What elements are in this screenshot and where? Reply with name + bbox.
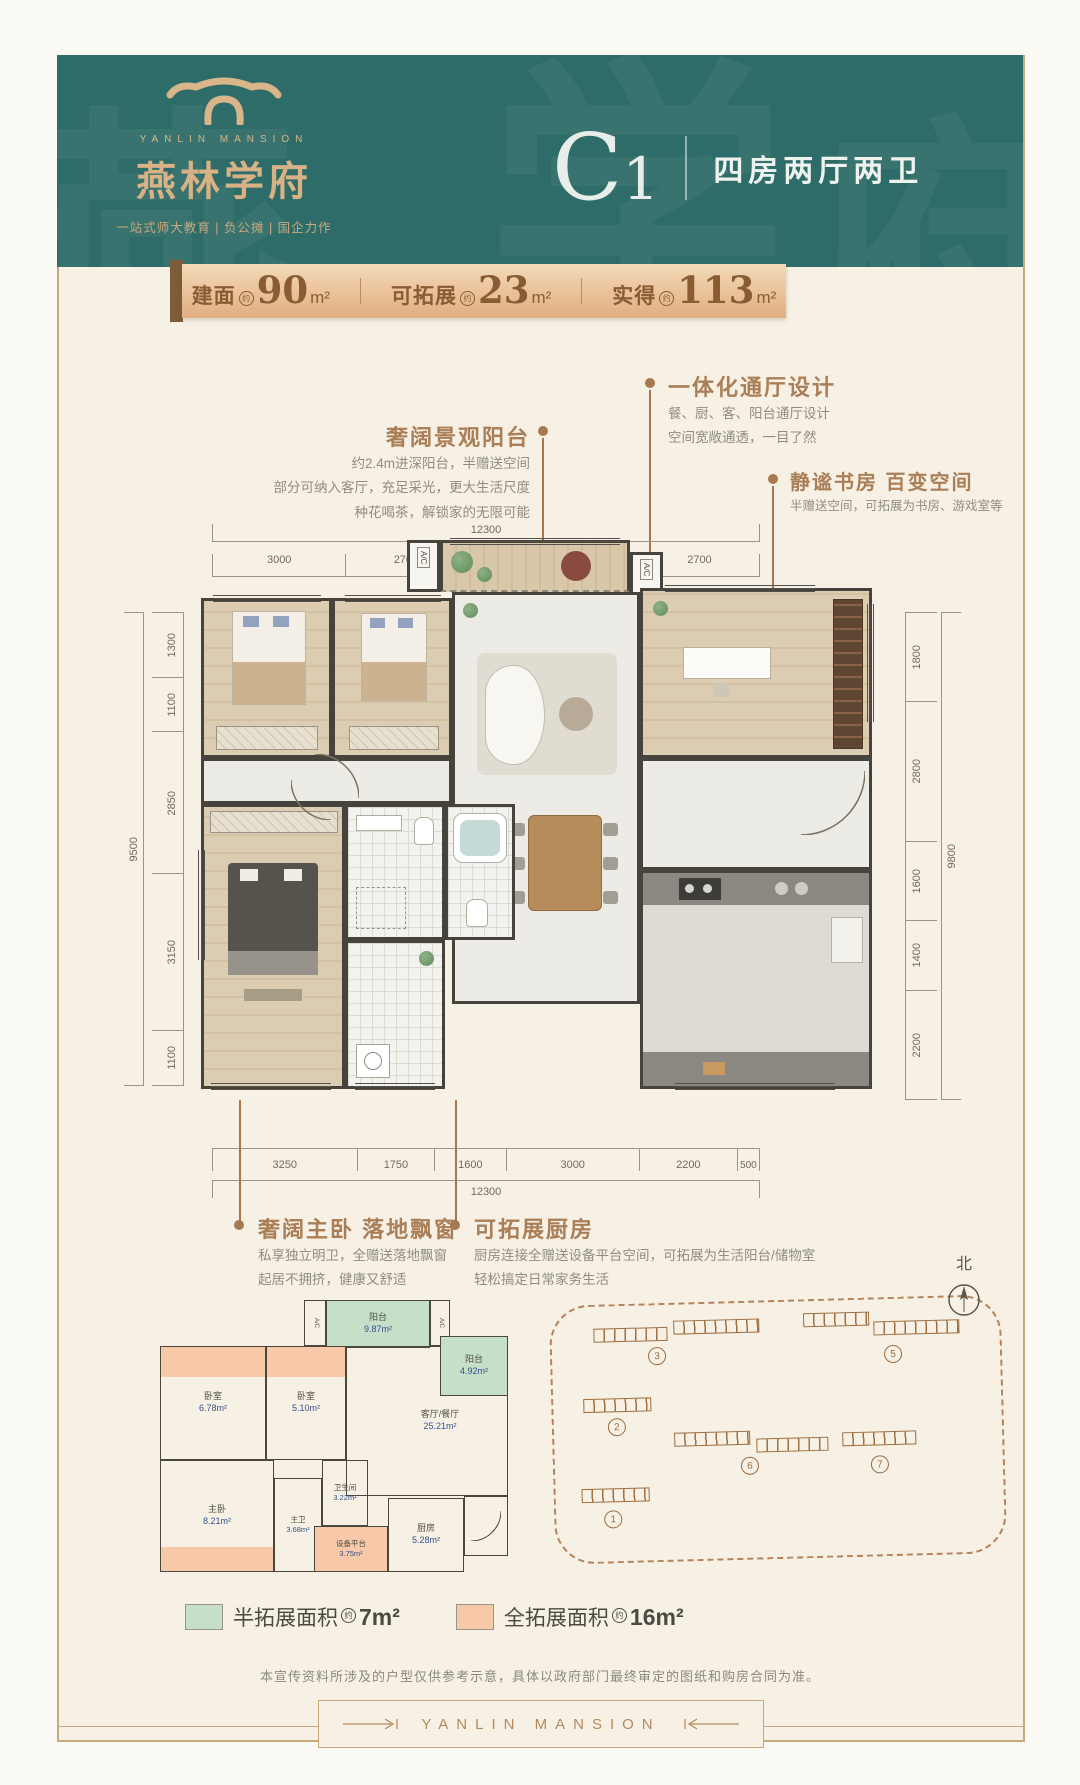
callout-balcony: 奢阔景观阳台 约2.4m进深阳台，半赠送空间 部分可纳入客厅，充足采光，更大生活… <box>180 420 530 525</box>
callout-leader-line <box>239 1100 241 1222</box>
dim-right-total: 9800 <box>941 612 961 1100</box>
callout-dot <box>538 426 548 436</box>
sofa <box>485 665 545 765</box>
room-area: 9.87m² <box>364 1324 392 1336</box>
bench <box>244 989 302 1001</box>
room-name: 主卫 <box>291 1515 306 1525</box>
dim-value: 1600 <box>911 869 923 893</box>
dim-bottom-segments: 3250 1750 1600 3000 2200 500 <box>212 1148 760 1171</box>
pillow <box>240 869 258 881</box>
plan-equipment-platform <box>345 940 445 1089</box>
toilet <box>414 817 434 845</box>
bar-divider <box>581 278 582 304</box>
building-block <box>581 1487 649 1503</box>
callout-title: 静谧书房 百变空间 <box>790 466 1050 495</box>
footer-ornament-right <box>679 1718 739 1730</box>
window <box>213 595 321 602</box>
mini-master-bedroom: 主卧 8.21m² <box>160 1460 274 1572</box>
dining-table <box>528 815 602 911</box>
legend-half-expand: 半拓展面积 约 7m² <box>185 1602 400 1632</box>
coffee-table <box>559 697 593 731</box>
bed <box>232 611 306 705</box>
room-name: 卧室 <box>204 1391 222 1403</box>
area-unit: m² <box>531 288 551 308</box>
plant <box>419 951 434 966</box>
pillow <box>284 869 302 881</box>
room-name: 阳台 <box>369 1312 387 1324</box>
roof-logo-icon <box>164 73 284 125</box>
desk <box>683 647 771 679</box>
area-value: 113 <box>677 272 754 309</box>
wardrobe <box>216 726 318 750</box>
building-block <box>674 1431 750 1447</box>
callout-line: 轻松搞定日常家务生活 <box>474 1268 894 1292</box>
ac-label: A/C <box>311 1318 319 1328</box>
brand-name-cn: 燕林学府 <box>109 149 339 207</box>
plan-balcony <box>440 540 630 592</box>
room-name: 设备平台 <box>336 1539 366 1549</box>
mini-equipment-platform: 设备平台 3.75m² <box>314 1526 388 1572</box>
dim-value: 2850 <box>166 791 178 815</box>
area-label: 实得 <box>612 280 656 310</box>
balcony-table <box>561 551 591 581</box>
fridge <box>831 917 863 963</box>
callout-study: 静谧书房 百变空间 半赠送空间，可拓展为书房、游戏室等 <box>790 466 1050 518</box>
area-item-expandable: 可拓展 约 23 m² <box>391 272 551 310</box>
plan-bedroom-2 <box>332 598 452 758</box>
callout-line: 部分可纳入客厅，充足采光，更大生活尺度 <box>180 476 530 500</box>
approx-mark: 约 <box>612 1608 627 1623</box>
washer-door <box>364 1052 382 1070</box>
window <box>450 538 620 545</box>
room-area: 3.22m² <box>333 1493 356 1503</box>
plan-master-bedroom <box>201 804 345 1089</box>
blanket <box>362 662 426 700</box>
plant <box>653 601 668 616</box>
sink <box>795 882 808 895</box>
full-expand-zone <box>267 1347 345 1377</box>
room-name: 厨房 <box>417 1523 435 1535</box>
window <box>355 1083 435 1090</box>
plan-ac-left: A/C <box>407 540 440 592</box>
room-name: 卫生间 <box>334 1483 357 1493</box>
legend-label: 全拓展面积 <box>504 1602 609 1632</box>
approx-mark: 约 <box>341 1608 356 1623</box>
window <box>665 585 815 592</box>
approx-mark: 约 <box>659 291 674 306</box>
callout-line: 厨房连接全赠送设备平台空间，可拓展为生活阳台/储物室 <box>474 1244 894 1268</box>
pillow <box>273 616 289 627</box>
cutting-board <box>703 1062 725 1075</box>
mini-balcony-small: 阳台 4.92m² <box>440 1336 508 1396</box>
room-area: 6.78m² <box>199 1403 227 1415</box>
dim-value: 1100 <box>166 693 178 717</box>
room-name: 卧室 <box>297 1391 315 1403</box>
callout-line: 约2.4m进深阳台，半赠送空间 <box>180 452 530 476</box>
pillow <box>370 618 385 628</box>
door-arc <box>471 1511 501 1541</box>
building-block <box>803 1312 869 1328</box>
bookshelf <box>833 599 863 749</box>
dim-value: 9800 <box>946 844 958 868</box>
brand-logo: YANLIN MANSION 燕林学府 一站式师大教育 | 负公摊 | 国企力作 <box>109 73 339 236</box>
approx-mark: 约 <box>239 291 254 306</box>
brand-name-en: YANLIN MANSION <box>109 134 339 145</box>
compass-icon <box>944 1274 984 1318</box>
area-summary-bar: 建面 约 90 m² 可拓展 约 23 m² 实得 约 113 m² <box>182 264 786 318</box>
room-area: 5.28m² <box>412 1535 440 1547</box>
room-area: 3.68m² <box>286 1525 309 1535</box>
building-block <box>583 1397 651 1413</box>
dim-left-segments: 1300 1100 2850 3150 1100 <box>152 612 184 1086</box>
callout-line: 空间宽敞通透，一目了然 <box>668 426 978 450</box>
callout-line: 半赠送空间，可拓展为书房、游戏室等 <box>790 495 1050 518</box>
footer-ornament-left <box>343 1718 403 1730</box>
ac-label: A/C <box>436 1318 444 1328</box>
dim-bottom-total: 12300 <box>212 1180 760 1198</box>
unit-letter: C <box>552 114 622 221</box>
burner <box>685 884 694 893</box>
entry-door-arc <box>801 771 865 835</box>
callout-dot <box>234 1220 244 1230</box>
window <box>345 595 441 602</box>
dim-value: 12300 <box>471 1186 502 1198</box>
kitchen-counter <box>643 1052 869 1086</box>
callout-dot <box>450 1220 460 1230</box>
vanity <box>356 815 402 831</box>
dim-value: 1400 <box>911 943 923 967</box>
callout-dot <box>645 378 655 388</box>
north-compass: 北 <box>942 1250 986 1323</box>
plant <box>451 551 473 573</box>
chair <box>603 891 618 904</box>
mini-entry <box>464 1496 508 1556</box>
dim-value: 12300 <box>471 524 502 536</box>
dim-value: 3250 <box>273 1159 297 1171</box>
area-item-gross: 建面 约 90 m² <box>192 272 330 310</box>
building-number: 5 <box>884 1345 902 1363</box>
building-number: 7 <box>871 1455 889 1473</box>
callout-title: 可拓展厨房 <box>474 1212 894 1244</box>
unit-code: C1 <box>552 122 659 214</box>
unit-divider <box>685 136 687 200</box>
unit-number: 1 <box>622 145 659 213</box>
brand-tagline: 一站式师大教育 | 负公摊 | 国企力作 <box>109 217 339 236</box>
chair <box>713 683 729 697</box>
legend-swatch-green <box>185 1604 223 1630</box>
bed <box>361 613 427 701</box>
callout-title: 奢阔景观阳台 <box>180 420 530 452</box>
dim-value: 9500 <box>128 837 140 861</box>
callout-line: 种花喝茶，解锁家的无限可能 <box>180 501 530 525</box>
dim-value: 1750 <box>384 1159 408 1171</box>
legend-label: 半拓展面积 <box>233 1602 338 1632</box>
site-plan: 3 5 2 6 7 1 <box>549 1294 1008 1565</box>
area-value: 23 <box>478 272 530 309</box>
area-unit: m² <box>757 288 777 308</box>
blanket <box>228 951 318 975</box>
full-expand-zone <box>161 1547 273 1571</box>
legend-full-expand: 全拓展面积 约 16m² <box>456 1602 684 1632</box>
legend-value: 16m² <box>630 1604 684 1631</box>
window <box>867 604 874 722</box>
plan-entry-hall <box>640 758 872 870</box>
header-banner: 燕 学 府 YANLIN MANSION 燕林学府 一站式师大教育 | 负公摊 … <box>57 55 1023 267</box>
plant <box>463 603 478 618</box>
dim-value: 500 <box>740 1160 757 1171</box>
plan-master-bath <box>345 804 445 940</box>
callout-hall: 一体化通厅设计 餐、厨、客、阳台通厅设计 空间宽敞通透，一目了然 <box>668 370 978 451</box>
dim-value: 2200 <box>676 1159 700 1171</box>
plan-bathroom <box>445 804 515 940</box>
bathtub <box>453 813 507 863</box>
room-area: 8.21m² <box>203 1516 231 1528</box>
plan-living-dining <box>452 592 640 1004</box>
dim-value: 1800 <box>911 645 923 669</box>
room-name: 主卧 <box>208 1504 226 1516</box>
full-expand-zone <box>161 1347 265 1377</box>
mini-ac: A/C <box>304 1300 326 1346</box>
unit-title: C1 四房两厅两卫 <box>552 103 923 233</box>
dim-value: 3000 <box>560 1159 584 1171</box>
wardrobe <box>349 726 439 750</box>
building-number: 6 <box>741 1457 759 1475</box>
kitchen-counter <box>643 873 869 905</box>
bay-window <box>211 1083 331 1090</box>
room-area: 3.75m² <box>339 1549 362 1559</box>
area-label: 建面 <box>192 280 236 310</box>
toilet <box>466 899 488 927</box>
room-area: 25.21m² <box>423 1421 456 1433</box>
callout-leader-line <box>455 1100 457 1222</box>
window <box>675 1083 835 1090</box>
mini-bathroom: 卫生间 3.22m² <box>322 1460 368 1526</box>
unit-description: 四房两厅两卫 <box>713 146 923 190</box>
pillow <box>243 616 259 627</box>
room-name: 阳台 <box>465 1354 483 1366</box>
stove <box>679 878 721 900</box>
room-name: 客厅/餐厅 <box>421 1409 460 1421</box>
dim-value: 1100 <box>166 1046 178 1070</box>
room-area: 5.10m² <box>292 1403 320 1415</box>
dim-right-segments: 1800 2800 1600 1400 2200 <box>905 612 937 1100</box>
area-unit: m² <box>310 288 330 308</box>
window <box>198 850 205 960</box>
room-area: 4.92m² <box>460 1366 488 1378</box>
callout-title: 一体化通厅设计 <box>668 370 978 402</box>
dim-value: 3150 <box>166 940 178 964</box>
building-block <box>756 1437 828 1453</box>
mini-kitchen: 厨房 5.28m² <box>388 1498 464 1572</box>
burner <box>703 884 712 893</box>
building-number: 1 <box>604 1510 622 1528</box>
ac-label: A/C <box>640 559 653 580</box>
chair <box>603 857 618 870</box>
area-item-actual: 实得 约 113 m² <box>612 272 776 310</box>
dim-value: 1600 <box>458 1159 482 1171</box>
legend-swatch-pink <box>456 1604 494 1630</box>
plan-bedroom-1 <box>201 598 332 758</box>
plant <box>477 567 492 582</box>
callout-kitchen: 可拓展厨房 厨房连接全赠送设备平台空间，可拓展为生活阳台/储物室 轻松搞定日常家… <box>474 1212 894 1293</box>
bar-divider <box>360 278 361 304</box>
mini-bedroom-2: 卧室 5.10m² <box>266 1346 346 1460</box>
building-number: 2 <box>608 1418 626 1436</box>
master-bed <box>228 863 318 975</box>
mini-balcony-big: 阳台 9.87m² <box>326 1300 430 1348</box>
building-block <box>673 1318 759 1334</box>
plan-kitchen <box>640 870 872 1089</box>
mini-bedroom-1: 卧室 6.78m² <box>160 1346 266 1460</box>
area-label: 可拓展 <box>391 280 457 310</box>
building-block <box>593 1327 667 1343</box>
shower <box>356 887 406 929</box>
area-value: 90 <box>257 272 309 309</box>
floor-plan: A/C A/C <box>195 540 878 1096</box>
washing-machine <box>356 1044 390 1078</box>
door-arc <box>291 780 331 820</box>
dim-value: 2200 <box>911 1033 923 1057</box>
callout-dot <box>768 474 778 484</box>
dim-left-total: 9500 <box>124 612 144 1086</box>
blanket <box>233 662 305 704</box>
footer-brand: YANLIN MANSION <box>421 1716 660 1733</box>
dim-value: 2800 <box>911 759 923 783</box>
legend: 半拓展面积 约 7m² 全拓展面积 约 16m² <box>185 1602 684 1632</box>
north-label: 北 <box>942 1250 986 1274</box>
plan-study <box>640 588 872 758</box>
disclaimer-text: 本宣传资料所涉及的户型仅供参考示意，具体以政府部门最终审定的图纸和购房合同为准。 <box>57 1666 1023 1685</box>
footer-band: YANLIN MANSION <box>318 1700 764 1748</box>
sink <box>775 882 788 895</box>
approx-mark: 约 <box>460 291 475 306</box>
ac-label: A/C <box>417 547 430 568</box>
callout-line: 餐、厨、客、阳台通厅设计 <box>668 402 978 426</box>
dim-value: 1300 <box>166 633 178 657</box>
legend-value: 7m² <box>359 1604 400 1631</box>
building-block <box>842 1430 916 1446</box>
mini-schematic: A/C 阳台 9.87m² A/C 客厅/餐厅 25.21m² 阳台 4.92m… <box>158 1300 508 1575</box>
building-number: 3 <box>648 1347 666 1365</box>
bathtub-water <box>460 820 500 856</box>
chair <box>603 823 618 836</box>
pillow <box>398 618 413 628</box>
